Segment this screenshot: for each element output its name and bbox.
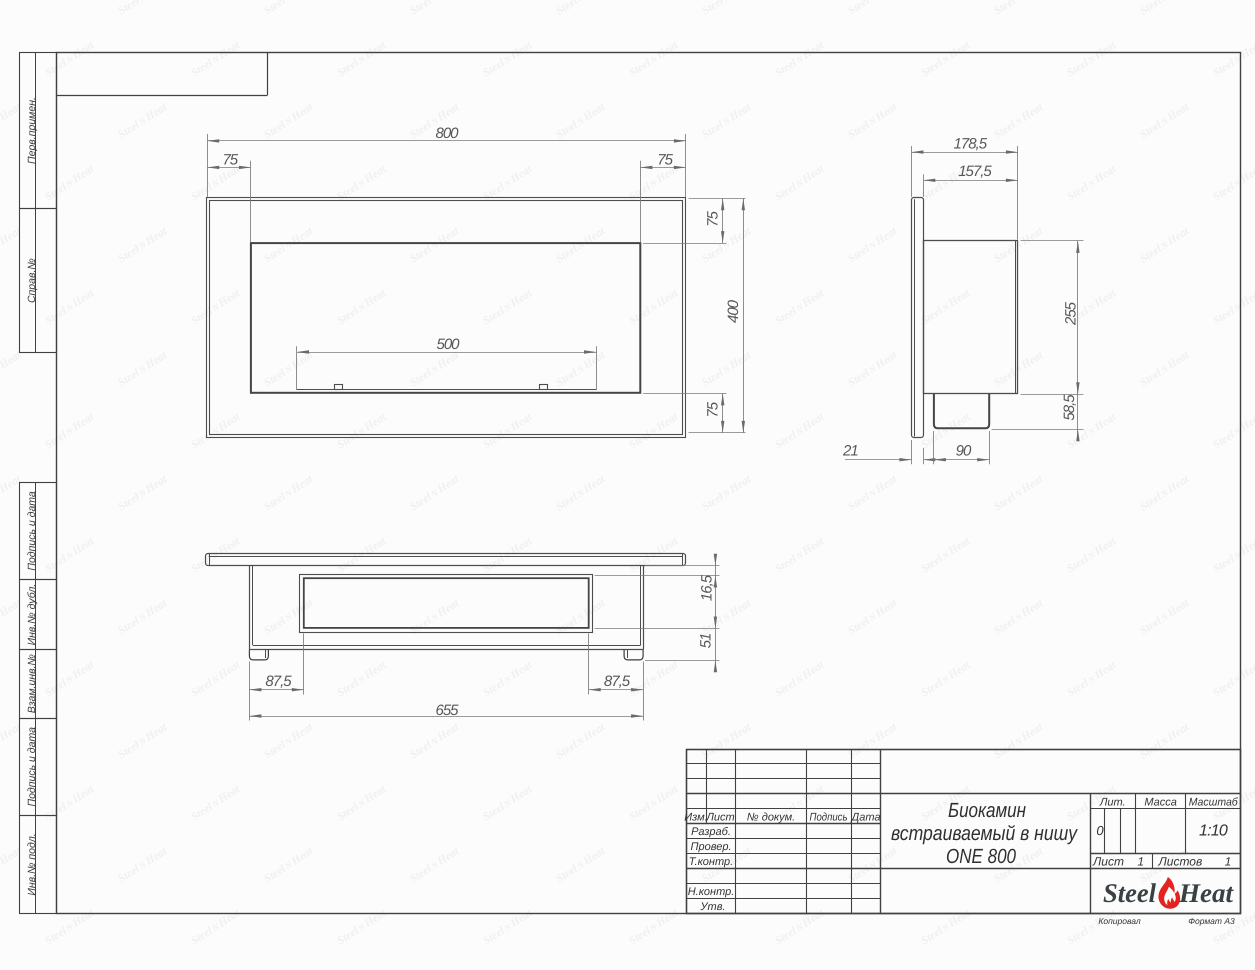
svg-text:Формат А3: Формат А3 [1188,916,1235,926]
svg-text:Лист: Лист [705,811,734,823]
svg-text:1: 1 [1225,854,1232,868]
svg-text:№ докум.: № докум. [747,811,795,823]
svg-text:1:10: 1:10 [1199,823,1228,840]
svg-text:Т.контр.: Т.контр. [689,856,733,868]
svg-text:51: 51 [698,633,715,648]
svg-text:Н.контр.: Н.контр. [688,886,735,898]
svg-text:Разраб.: Разраб. [691,826,731,838]
svg-text:87,5: 87,5 [265,673,292,690]
svg-text:500: 500 [436,336,460,353]
svg-text:255: 255 [1063,301,1080,326]
svg-text:800: 800 [435,125,459,142]
svg-text:Копировал: Копировал [1098,916,1140,926]
svg-text:встраиваемый в нишу: встраиваемый в нишу [891,822,1078,845]
svg-text:157,5: 157,5 [958,163,992,180]
svg-text:Подпись: Подпись [810,811,848,823]
svg-text:Heat: Heat [1178,878,1234,908]
svg-text:Инв.№ дубл.: Инв.№ дубл. [26,584,38,646]
svg-text:Изм.: Изм. [684,811,707,823]
svg-text:75: 75 [657,151,673,168]
svg-text:Биокамин: Биокамин [948,799,1026,822]
svg-text:75: 75 [705,401,722,417]
svg-text:Подпись и дата: Подпись и дата [26,727,38,807]
svg-text:Масса: Масса [1144,796,1177,808]
svg-text:90: 90 [956,442,972,459]
svg-text:Лит.: Лит. [1099,796,1126,808]
svg-text:Инв.№ подл.: Инв.№ подл. [26,833,38,895]
svg-text:400: 400 [725,299,742,323]
svg-text:Steel: Steel [1103,878,1156,908]
svg-text:655: 655 [435,702,459,719]
svg-text:ONE 800: ONE 800 [946,845,1016,868]
svg-text:21: 21 [842,442,858,459]
svg-text:87,5: 87,5 [604,673,631,690]
svg-text:Провер.: Провер. [691,841,732,853]
svg-text:1: 1 [1137,854,1144,868]
svg-text:Подпись и дата: Подпись и дата [26,491,38,571]
svg-text:Масштаб: Масштаб [1189,796,1239,808]
svg-text:Взам.инв.№: Взам.инв.№ [26,654,38,713]
svg-text:Листов: Листов [1158,854,1203,868]
svg-text:Лист: Лист [1092,854,1124,868]
svg-text:Перв.примен.: Перв.примен. [26,97,38,164]
svg-text:Дата: Дата [849,811,880,823]
svg-text:16,5: 16,5 [699,574,716,601]
svg-text:Справ.№: Справ.№ [26,258,38,303]
svg-text:178,5: 178,5 [954,136,988,153]
svg-text:75: 75 [705,211,722,227]
svg-text:0: 0 [1096,823,1104,838]
svg-text:Утв.: Утв. [700,901,726,913]
svg-text:75: 75 [222,151,238,168]
svg-text:58,5: 58,5 [1061,394,1078,421]
